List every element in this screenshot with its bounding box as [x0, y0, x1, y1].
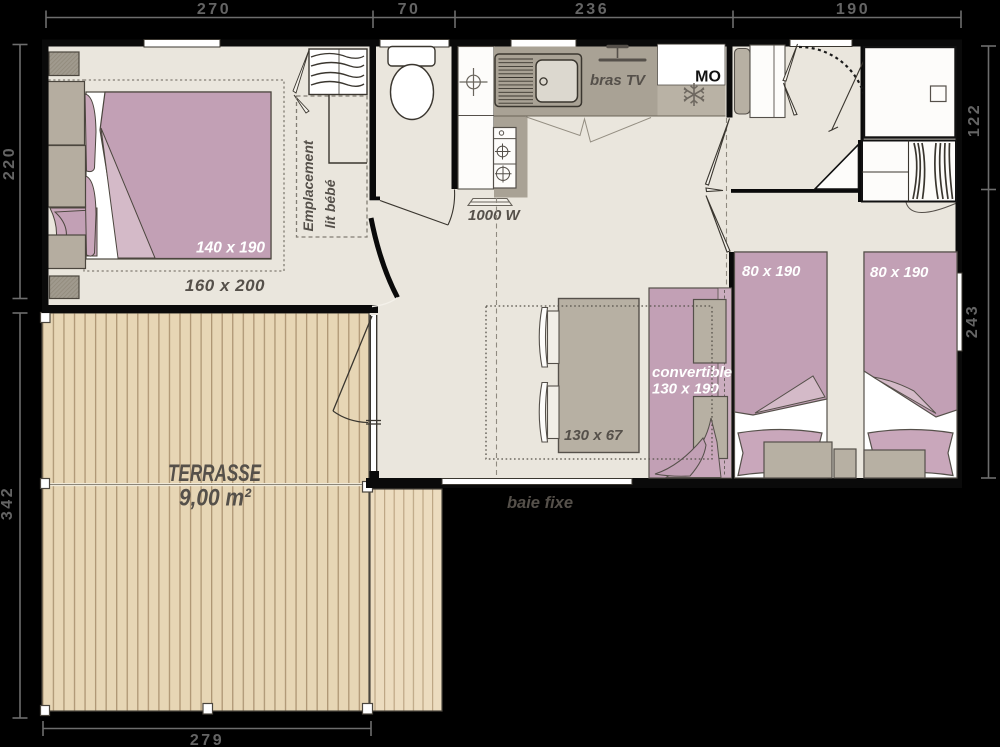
svg-text:70: 70 [398, 1, 421, 18]
svg-text:160 x 200: 160 x 200 [185, 276, 265, 295]
svg-text:80 x 190: 80 x 190 [870, 264, 929, 281]
svg-text:bras TV: bras TV [590, 72, 647, 89]
svg-text:130 x 190: 130 x 190 [652, 381, 719, 398]
svg-text:342: 342 [0, 486, 16, 520]
svg-text:TERRASSE: TERRASSE [168, 460, 261, 487]
svg-text:MO: MO [695, 69, 721, 86]
svg-text:236: 236 [575, 1, 609, 18]
svg-text:190: 190 [836, 1, 870, 18]
svg-text:130 x 67: 130 x 67 [564, 427, 623, 444]
svg-text:baie fixe: baie fixe [507, 494, 573, 512]
svg-text:140 x 190: 140 x 190 [196, 240, 265, 257]
svg-text:270: 270 [197, 1, 231, 18]
svg-text:243: 243 [964, 304, 981, 338]
svg-text:lit bébé: lit bébé [322, 179, 338, 228]
svg-text:80 x 190: 80 x 190 [742, 263, 801, 280]
svg-text:9,00 m²: 9,00 m² [179, 485, 252, 512]
svg-text:1000 W: 1000 W [468, 207, 522, 224]
svg-text:convertible: convertible [652, 364, 732, 381]
svg-text:279: 279 [190, 732, 224, 747]
svg-text:220: 220 [1, 146, 18, 180]
svg-text:Emplacement: Emplacement [300, 139, 316, 231]
svg-text:122: 122 [966, 103, 983, 137]
